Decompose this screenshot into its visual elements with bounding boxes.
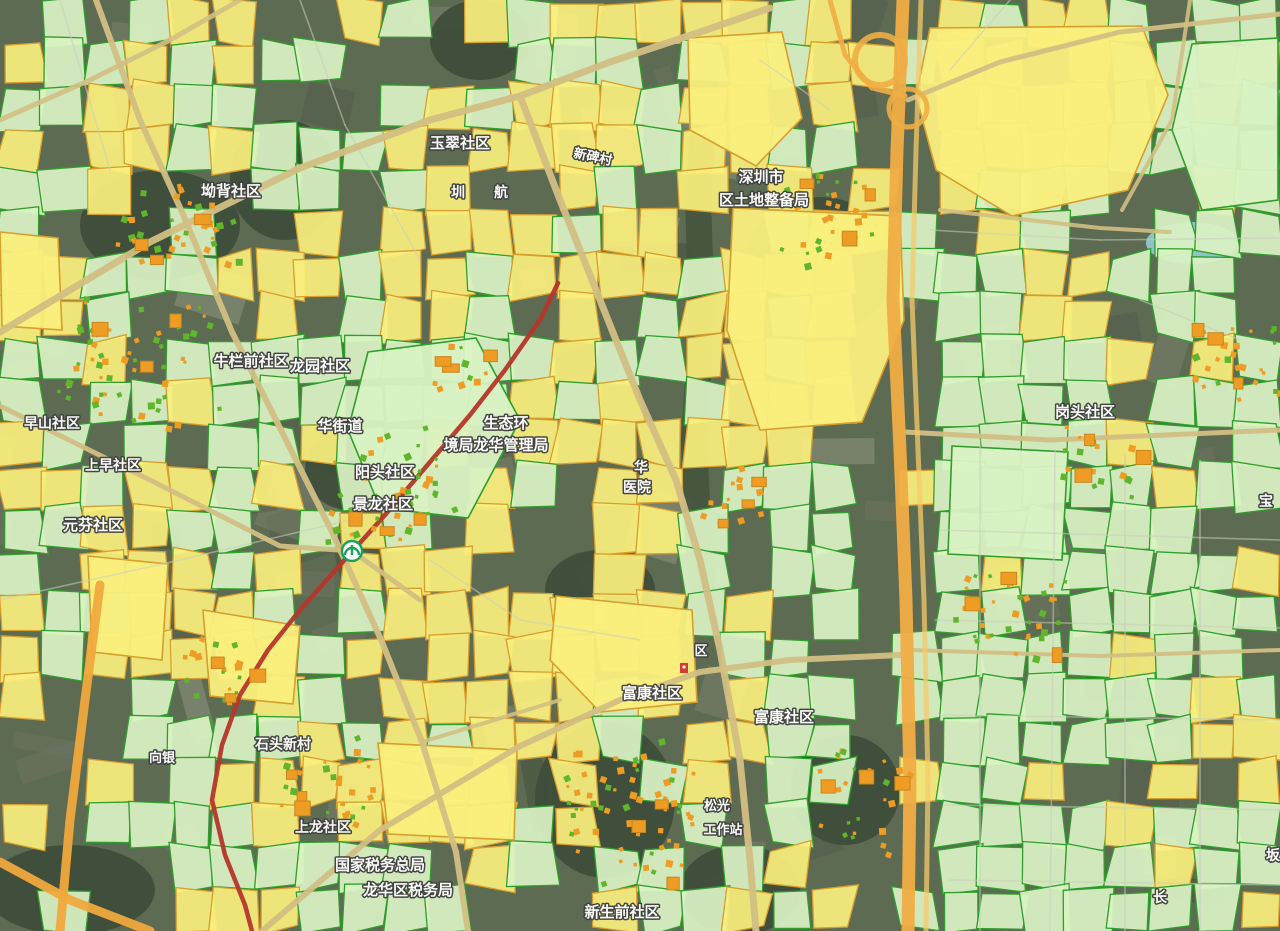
map-label: 上早社区	[85, 457, 141, 474]
map-label: 航	[494, 184, 508, 201]
map-label: 松光	[704, 798, 730, 814]
map-label: 深圳市	[738, 168, 783, 186]
map-label: 景龙社区	[353, 495, 413, 513]
shenzhen-metro-station-icon	[342, 541, 362, 561]
map-label: 早山社区	[24, 415, 80, 432]
map-label: 阳头社区	[355, 463, 415, 481]
map-label: 石头新村	[254, 736, 311, 753]
map-label: 富康社区	[754, 708, 814, 726]
poi-marker	[680, 663, 688, 673]
map-label: 华街道	[317, 417, 362, 435]
map-canvas[interactable]: 玉翠社区新碑村圳航坳背社区深圳市区土地整备局牛栏前社区龙园社区华街道阳头社区景龙…	[0, 0, 1280, 931]
map-label: 圳	[451, 185, 465, 201]
map-label: 坂	[1266, 847, 1280, 864]
map-label: 境局龙华管理局	[443, 436, 548, 454]
map-label: 坳背社区	[201, 182, 261, 200]
map-label: 龙园社区	[289, 357, 350, 375]
map-label: 国家税务总局	[335, 856, 425, 874]
map-label: 上龙社区	[295, 819, 351, 836]
map-label: 生态环	[483, 414, 528, 432]
map-label: 牛栏前社区	[213, 352, 288, 370]
map-label: 富康社区	[622, 684, 682, 702]
map-label: 区	[694, 644, 707, 659]
map-label: 工作站	[703, 822, 742, 838]
map-svg: 玉翠社区新碑村圳航坳背社区深圳市区土地整备局牛栏前社区龙园社区华街道阳头社区景龙…	[0, 0, 1280, 931]
map-label: 华	[634, 459, 648, 476]
map-label: 新生前社区	[584, 903, 659, 921]
map-label: 宝	[1259, 493, 1273, 510]
map-label: 区土地整备局	[719, 191, 809, 209]
map-label: 向银	[149, 750, 176, 766]
map-label: 玉翠社区	[430, 134, 490, 152]
map-label: 医院	[623, 479, 651, 496]
map-label: 元芬社区	[63, 516, 123, 534]
map-label: 长	[1153, 889, 1168, 906]
map-label: 龙华区税务局	[362, 881, 453, 899]
map-label: 岗头社区	[1055, 403, 1115, 421]
